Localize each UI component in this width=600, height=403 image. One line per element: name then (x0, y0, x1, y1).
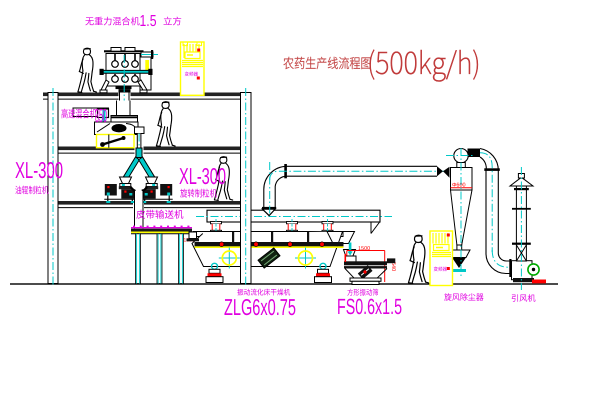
svg-text:XL-300: XL-300 (179, 163, 226, 189)
svg-text:1500: 1500 (358, 246, 370, 252)
svg-text:ZLG6x0.75: ZLG6x0.75 (224, 294, 296, 320)
svg-text:350: 350 (95, 106, 107, 127)
svg-text:1.5: 1.5 (140, 13, 157, 30)
svg-text:540: 540 (390, 262, 396, 271)
svg-text:XL-300: XL-300 (15, 157, 63, 183)
svg-text:FS0.6x1.5: FS0.6x1.5 (337, 294, 402, 319)
